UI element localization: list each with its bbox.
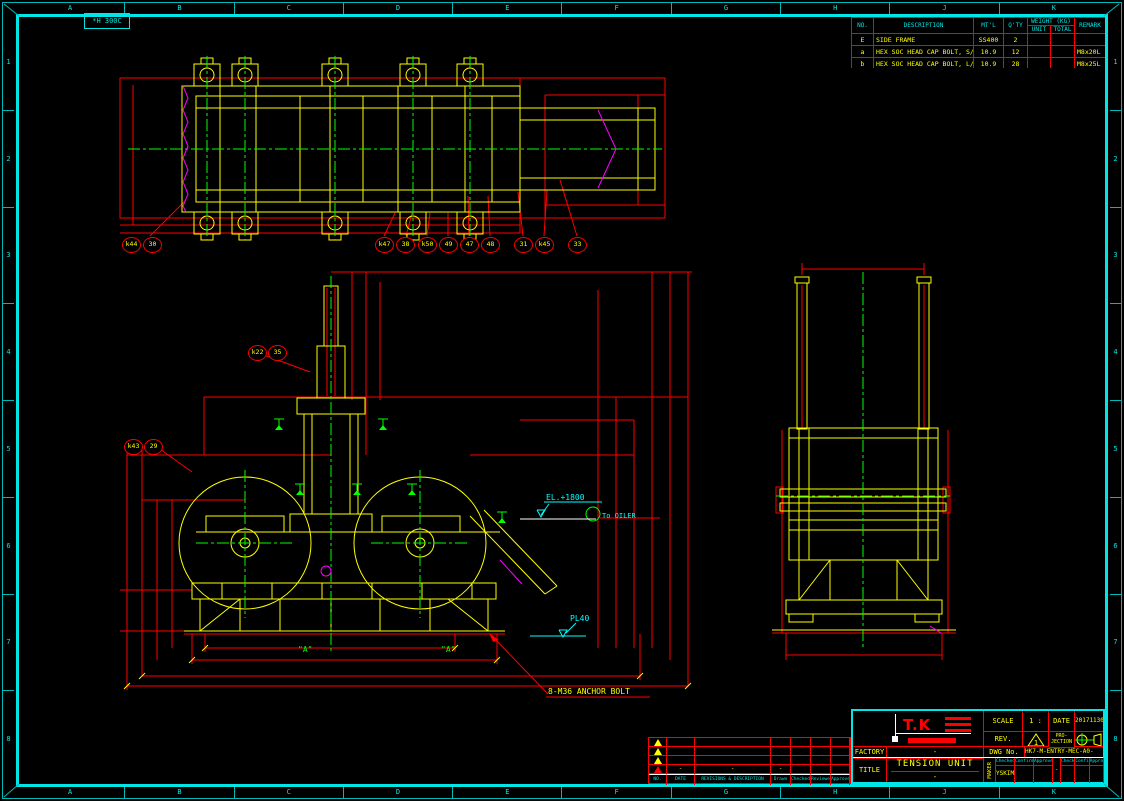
part-balloon[interactable]: k47 <box>375 237 394 253</box>
cad-drawing-sheet: ABCDEFGHJK ABCDEFGHJK 12345678 12345678 … <box>0 0 1124 801</box>
part-balloon[interactable]: 38 <box>396 237 415 253</box>
part-balloon[interactable]: 33 <box>568 237 587 253</box>
section-a-label-right: "A" <box>441 645 455 654</box>
anchor-bolt-label: 8-M36 ANCHOR BOLT <box>548 687 630 696</box>
plate-label: PL40 <box>570 614 589 623</box>
part-balloon[interactable]: k45 <box>535 237 554 253</box>
part-balloon[interactable]: k44 <box>122 237 141 253</box>
section-a-label-left: "A" <box>298 645 312 654</box>
part-balloon[interactable]: 30 <box>143 237 162 253</box>
oiler-label: To OILER <box>602 512 637 520</box>
part-balloon[interactable]: k22 <box>248 345 267 361</box>
elevation-label: EL.+1800 <box>546 493 585 502</box>
part-balloon[interactable]: k50 <box>418 237 437 253</box>
part-balloon[interactable]: 48 <box>481 237 500 253</box>
drawing-canvas[interactable]: EL.+1800 To OILER PL40 8-M36 ANCHOR BOLT… <box>0 0 1124 801</box>
part-balloon[interactable]: 31 <box>514 237 533 253</box>
part-balloon[interactable]: k43 <box>124 439 143 455</box>
part-balloon[interactable]: 35 <box>268 345 287 361</box>
part-balloon[interactable]: 29 <box>144 439 163 455</box>
part-balloon[interactable]: 47 <box>460 237 479 253</box>
part-balloon[interactable]: 49 <box>439 237 458 253</box>
